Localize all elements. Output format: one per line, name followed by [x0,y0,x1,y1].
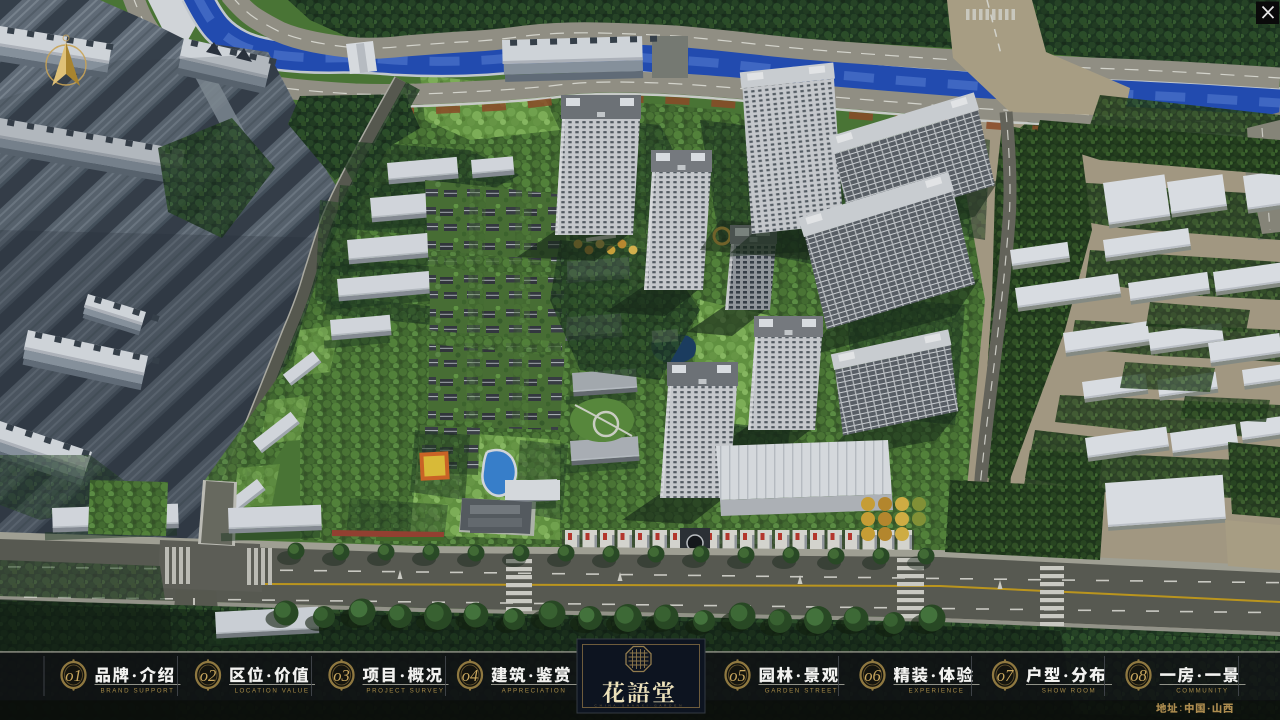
svg-text:o1: o1 [65,666,82,685]
svg-text:o3: o3 [333,666,350,685]
svg-text:LOCATION VALUE: LOCATION VALUE [234,688,309,695]
svg-text:o5: o5 [729,666,746,685]
svg-text:SHOW ROOM: SHOW ROOM [1042,688,1097,695]
svg-text:BRAND SUPPORT: BRAND SUPPORT [101,688,175,695]
svg-text:o7: o7 [997,666,1014,685]
svg-text:o8: o8 [1130,666,1147,685]
svg-text:o6: o6 [864,666,881,685]
svg-text:C H I N A · S H A N X I · G A: C H I N A · S H A N X I · G A R D E N [595,704,683,708]
svg-text:o4: o4 [462,666,479,685]
svg-text:APPRECIATION: APPRECIATION [502,688,567,695]
svg-text:COMMUNITY: COMMUNITY [1176,688,1229,695]
svg-text:o2: o2 [200,666,217,685]
svg-text:EXPERIENCE: EXPERIENCE [909,688,965,695]
svg-text:PROJECT SURVEY: PROJECT SURVEY [366,688,444,695]
svg-text:GARDEN STREET: GARDEN STREET [765,688,838,695]
